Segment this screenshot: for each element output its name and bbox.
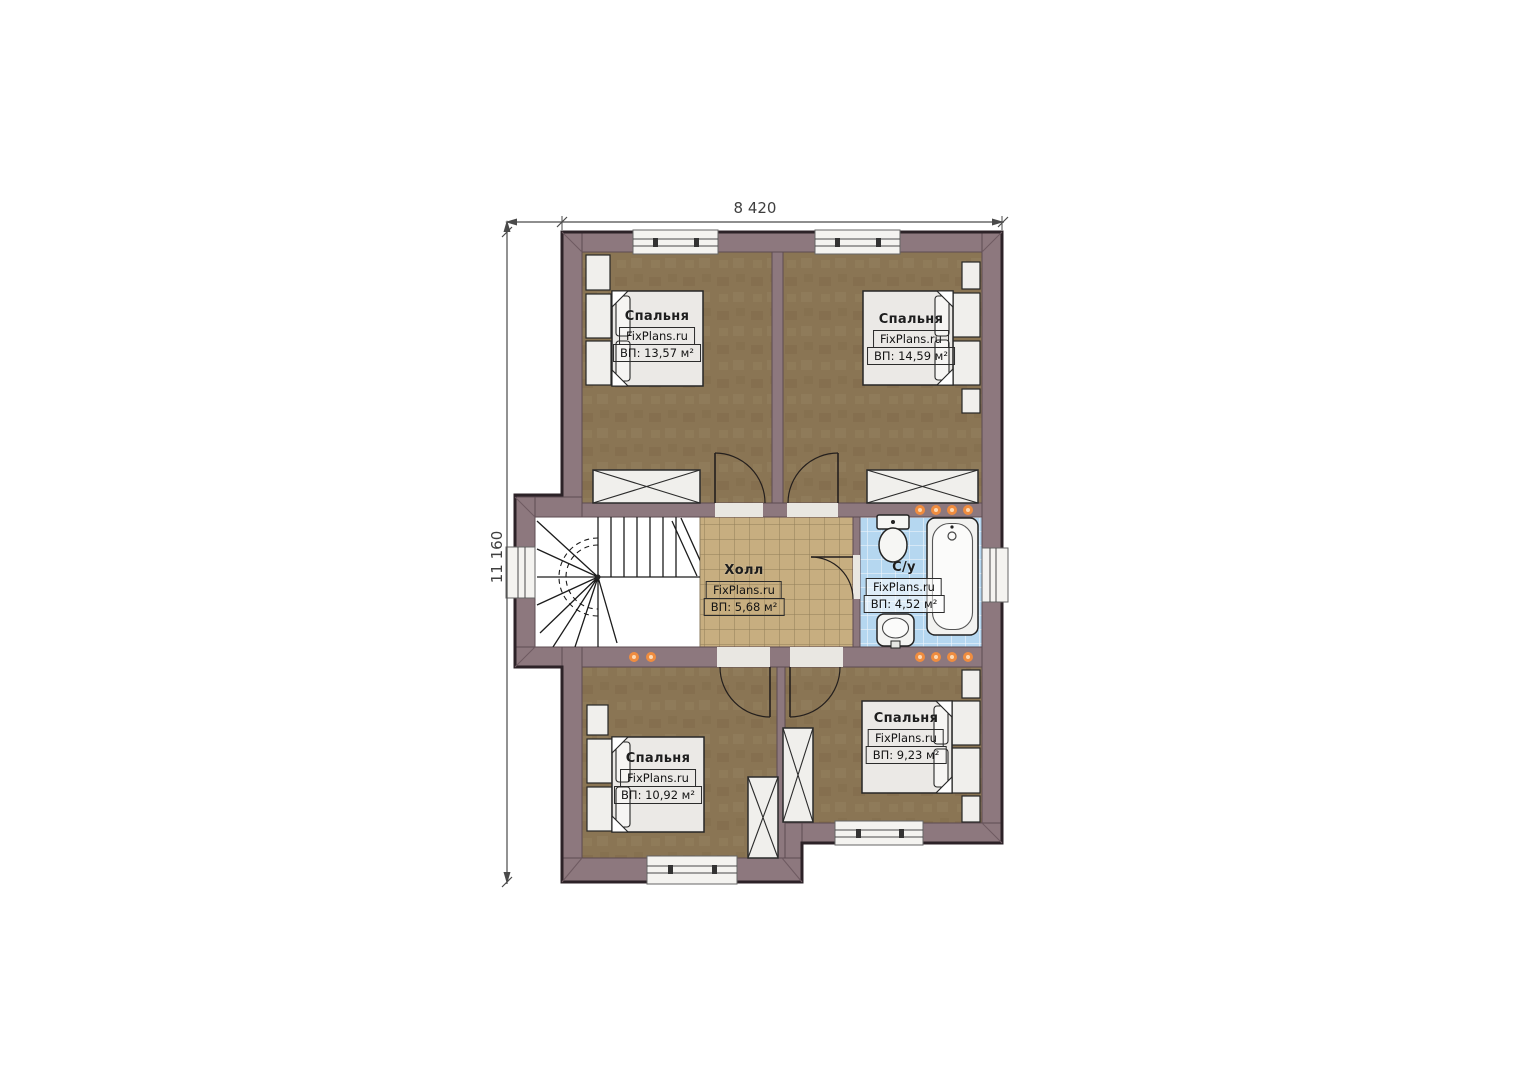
dimension-height-label: 11 160 (488, 531, 506, 584)
room-area: ВП: 4,52 м² (864, 595, 945, 613)
wall-left-lower (562, 647, 582, 882)
room-area: ВП: 10,92 м² (614, 786, 702, 804)
room-name: С/у (892, 560, 916, 575)
room-label-bathroom: С/у FixPlans.ru ВП: 4,52 м² (864, 560, 945, 613)
room-brand: FixPlans.ru (873, 330, 949, 348)
room-name: Спальня (626, 751, 690, 766)
room-label-hall: Холл FixPlans.ru ВП: 5,68 м² (704, 563, 785, 616)
window-top-left (633, 230, 718, 254)
floor-plan-drawing (0, 0, 1528, 1080)
room-label-bedroom-top-left: Спальня FixPlans.ru ВП: 13,57 м² (613, 309, 701, 362)
wall-right (982, 232, 1002, 843)
window-right-bathroom (982, 548, 1008, 602)
floor-plan-page: Спальня FixPlans.ru ВП: 13,57 м² Спальня… (0, 0, 1528, 1080)
room-label-bedroom-bottom-left: Спальня FixPlans.ru ВП: 10,92 м² (614, 751, 702, 804)
dimension-width-label: 8 420 (734, 199, 777, 217)
room-brand: FixPlans.ru (619, 327, 695, 345)
wall-top (562, 232, 1002, 252)
wall-left-upper (562, 232, 582, 497)
closet-bottom-middle-left (748, 777, 778, 858)
room-name: Спальня (874, 711, 938, 726)
room-label-bedroom-top-right: Спальня FixPlans.ru ВП: 14,59 м² (867, 312, 955, 365)
room-brand: FixPlans.ru (706, 581, 782, 599)
window-top-right (815, 230, 900, 254)
room-area: ВП: 9,23 м² (866, 746, 947, 764)
closet-bottom-middle-right (783, 728, 813, 822)
closet-bedroom-top-left (593, 470, 700, 503)
room-label-bedroom-bottom-right: Спальня FixPlans.ru ВП: 9,23 м² (866, 711, 947, 764)
room-name: Холл (724, 563, 763, 578)
room-brand: FixPlans.ru (620, 769, 696, 787)
room-name: Спальня (879, 312, 943, 327)
room-brand: FixPlans.ru (868, 729, 944, 747)
room-name: Спальня (625, 309, 689, 324)
window-bottom-left (647, 856, 737, 884)
room-area: ВП: 13,57 м² (613, 344, 701, 362)
closet-bedroom-top-right (867, 470, 978, 503)
window-left-stair (506, 547, 535, 598)
room-area: ВП: 14,59 м² (867, 347, 955, 365)
toilet-icon (877, 515, 909, 562)
sink-icon (877, 614, 914, 648)
window-bottom-right (835, 821, 923, 845)
wall-between-top-bedrooms (772, 252, 783, 503)
room-area: ВП: 5,68 м² (704, 598, 785, 616)
room-brand: FixPlans.ru (866, 578, 942, 596)
